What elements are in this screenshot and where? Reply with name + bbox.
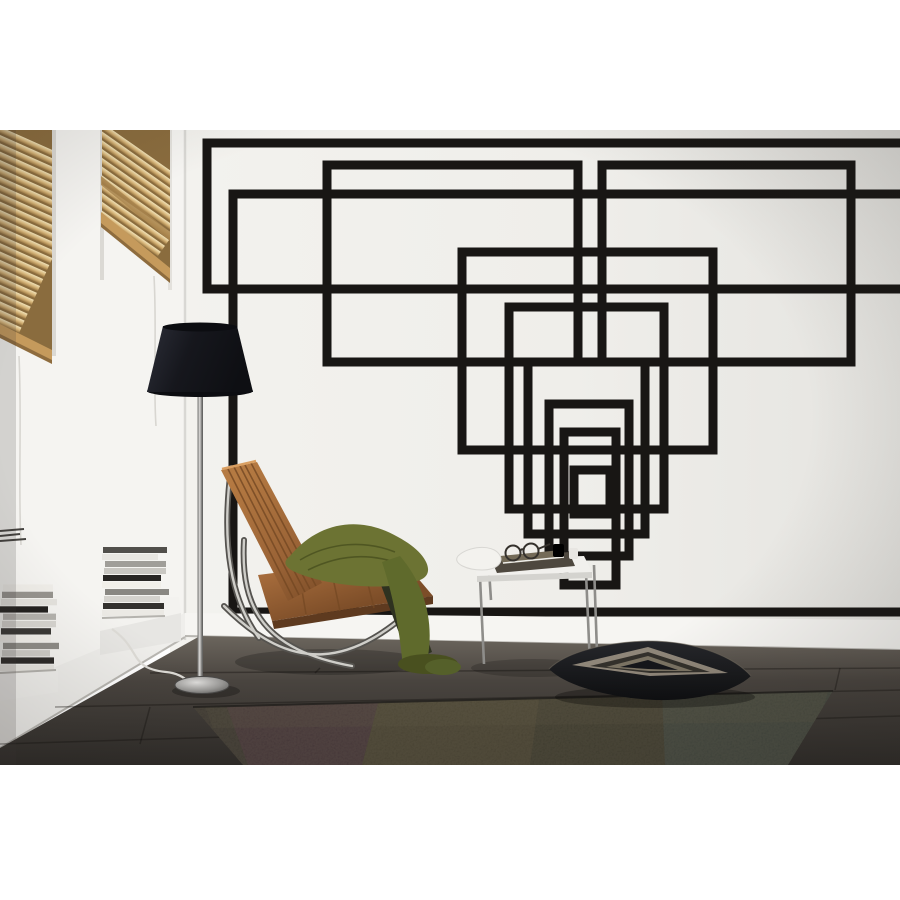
letterbox-top	[0, 0, 900, 130]
lighting-overlays	[0, 130, 900, 765]
room-scene	[0, 130, 900, 765]
letterbox-bottom	[0, 765, 900, 900]
vignette	[0, 130, 900, 765]
room-photo	[0, 130, 900, 765]
photo-frame: Living room photo: white wall with black…	[0, 0, 900, 900]
